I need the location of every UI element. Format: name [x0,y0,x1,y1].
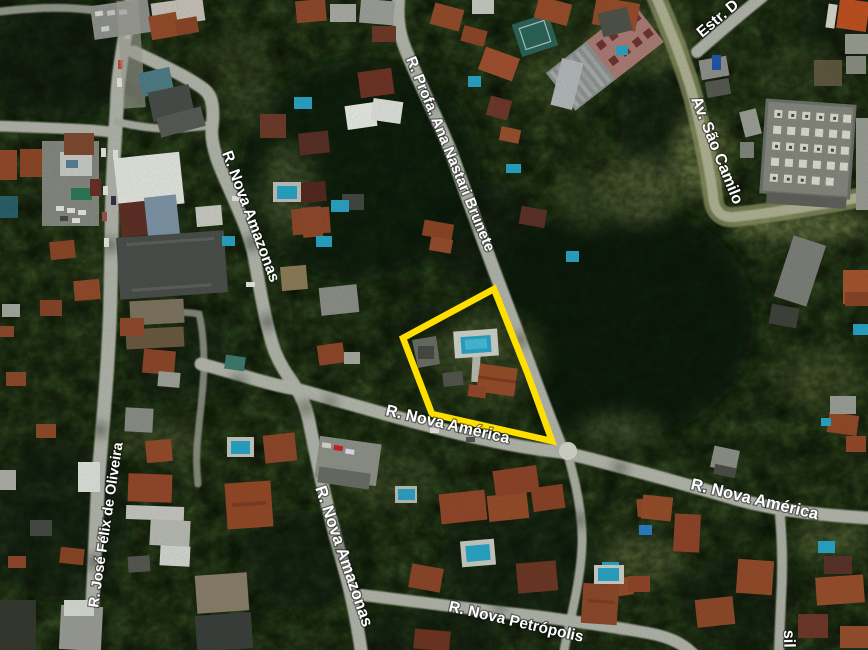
svg-text:sil: sil [780,630,797,648]
